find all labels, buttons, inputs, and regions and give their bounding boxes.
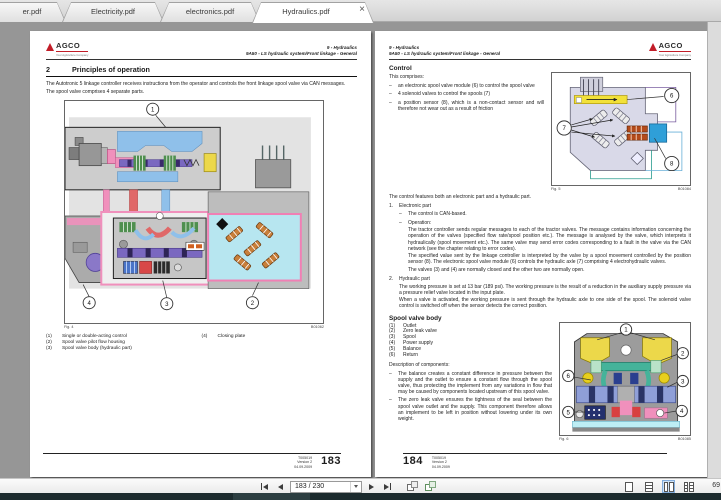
caption-item: (4)Closing plate	[202, 334, 358, 340]
svg-text:6: 6	[567, 373, 571, 380]
agco-triangle-icon	[649, 43, 657, 51]
page-footer: T005019 Version 2 04.09.2009 183	[30, 453, 371, 469]
taskbar-edge	[0, 493, 721, 500]
snapshot-button[interactable]	[407, 481, 419, 493]
page-184: 9 - Hydraulics 9A50 - LS hydraulic syste…	[375, 31, 707, 477]
logo-tagline: Your Agriculture Company	[56, 53, 88, 57]
figure-ref-code: B01062	[311, 325, 324, 329]
caption-item: (3)Spool valve body (hydraulic part)	[46, 346, 202, 352]
figure-5: 6 7 8 Fig. 5 B01084	[551, 72, 691, 191]
page-183: AGCO Your Agriculture Company 9 - Hydrau…	[30, 31, 371, 477]
next-page-icon	[369, 484, 374, 490]
valve-module-diagram: 6 7 8	[552, 73, 690, 185]
page-header: 9 - Hydraulics 9A50 - LS hydraulic syste…	[389, 42, 691, 60]
paragraph: The valves (3) and (4) are normally clos…	[408, 267, 691, 273]
spool-valve-body-heading: Spool valve body	[389, 315, 691, 322]
figure-label: Fig. 5	[551, 187, 561, 191]
previous-page-icon	[278, 484, 283, 490]
section-title-row: 2 Principles of operation	[46, 65, 357, 77]
svg-text:5: 5	[567, 409, 571, 416]
figure-label: Fig. 4	[64, 325, 74, 329]
facing-pages-icon	[664, 482, 674, 492]
tab-hydraulics-pdf[interactable]: Hydraulics.pdf ×	[252, 2, 374, 23]
figure-label: Fig. 6	[559, 437, 569, 441]
document-canvas: AGCO Your Agriculture Company 9 - Hydrau…	[0, 22, 707, 478]
caption-item: (6)Return	[389, 353, 552, 359]
figure-6: 1 2 3 4 5 6 Fig. 6 B01085	[559, 322, 691, 441]
first-page-icon	[263, 484, 268, 490]
continuous-view-button[interactable]	[642, 480, 655, 493]
numbered-item: 1.Electronic part	[389, 203, 691, 209]
bullet-item: –a position sensor (8), which is a non-c…	[389, 100, 544, 112]
tab-bar: er.pdf Electricity.pdf electronics.pdf H…	[0, 0, 721, 22]
tab-label: electronics.pdf	[160, 7, 260, 16]
page-footer: 184 T005019 Version 2 04.09.2009	[375, 453, 707, 469]
paragraph: The Autotronic 5 linkage controller rece…	[46, 81, 357, 87]
logo-tagline: Your Agriculture Company	[659, 53, 691, 57]
doc-info: T005019 Version 2 04.09.2009	[432, 456, 450, 469]
bullet-item: –The zero leak valve ensures the tightne…	[389, 397, 552, 421]
figure-ref-code: B01084	[678, 187, 691, 191]
bullet-item: –The balance creates a constant differen…	[389, 371, 552, 395]
tab-label: Electricity.pdf	[62, 7, 164, 16]
figure-ref-code: B01085	[678, 437, 691, 441]
single-page-view-button[interactable]	[622, 480, 635, 493]
figure-5-frame: 6 7 8	[551, 72, 691, 186]
page-header: AGCO Your Agriculture Company 9 - Hydrau…	[46, 42, 357, 60]
hydraulic-cutaway-diagram: 1 2 3 4	[65, 101, 323, 323]
paragraph: The control features both an electronic …	[389, 194, 691, 200]
svg-text:1: 1	[624, 326, 628, 333]
section-title: Principles of operation	[72, 65, 150, 74]
navigation-toolbar: 183 / 230 69	[0, 478, 721, 493]
numbered-item: 2.Hydraulic part	[389, 276, 691, 282]
agco-logo: AGCO Your Agriculture Company	[46, 42, 88, 57]
section-line: 9A50 - LS hydraulic system/Front linkage…	[246, 51, 357, 57]
section-number: 2	[46, 65, 50, 74]
svg-text:2: 2	[681, 350, 685, 357]
logo-text: AGCO	[56, 42, 88, 50]
book-view-button[interactable]	[682, 480, 695, 493]
facing-pages-view-button[interactable]	[662, 480, 675, 493]
last-page-icon	[384, 484, 389, 490]
svg-text:4: 4	[680, 408, 684, 415]
bullet-item: –Operation:	[399, 220, 691, 226]
next-page-button[interactable]	[365, 480, 378, 493]
chevron-down-icon	[354, 485, 358, 488]
continuous-view-icon	[645, 482, 653, 492]
single-page-icon	[625, 482, 633, 492]
figure-captions: (1)Single or double-acting control (2)Sp…	[46, 334, 357, 352]
running-header: 9 - Hydraulics 9A50 - LS hydraulic syste…	[389, 45, 500, 56]
tab-label: Hydraulics.pdf	[252, 7, 374, 16]
figure-6-frame: 1 2 3 4 5 6	[559, 322, 691, 436]
agco-logo: AGCO Your Agriculture Company	[649, 42, 691, 57]
page-number: 183	[321, 456, 341, 467]
close-tab-icon[interactable]: ×	[359, 5, 365, 15]
taskbar-button-fragment	[233, 493, 310, 500]
logo-text: AGCO	[659, 42, 691, 50]
figure-4-frame: 1 2 3 4	[64, 100, 324, 324]
last-page-button[interactable]	[381, 480, 394, 493]
page-number-input[interactable]: 183 / 230	[290, 481, 362, 493]
paragraph: The specified value sent by the linkage …	[408, 253, 691, 265]
tab-er-pdf[interactable]: er.pdf	[0, 2, 66, 22]
page-number: 184	[403, 456, 423, 467]
agco-triangle-icon	[46, 43, 54, 51]
vertical-scrollbar[interactable]	[707, 22, 721, 478]
running-header: 9 - Hydraulics 9A50 - LS hydraulic syste…	[246, 45, 357, 56]
svg-text:3: 3	[681, 378, 685, 385]
first-page-button[interactable]	[258, 480, 271, 493]
doc-info: T005019 Version 2 04.09.2009	[294, 456, 312, 469]
section-line: 9A50 - LS hydraulic system/Front linkage…	[389, 51, 500, 57]
previous-page-button[interactable]	[274, 480, 287, 493]
paragraph: The tractor controller sends regular mes…	[408, 227, 691, 251]
bullet-item: –an electronic spool valve module (6) to…	[389, 83, 544, 89]
spool-valve-body-diagram: 1 2 3 4 5 6	[560, 323, 690, 435]
bullet-item: –The control is CAN-based.	[399, 211, 691, 217]
copy-view-button[interactable]	[425, 481, 437, 493]
bullet-item: –4 solenoid valves to control the spools…	[389, 91, 544, 97]
tab-electricity-pdf[interactable]: Electricity.pdf	[62, 2, 164, 22]
book-view-icon	[684, 482, 694, 492]
zoom-level[interactable]: 69	[712, 482, 720, 489]
tab-label: er.pdf	[0, 7, 66, 16]
paragraph: The working pressure is set at 13 bar (1…	[399, 284, 691, 296]
control-heading: Control	[389, 65, 691, 72]
tab-electronics-pdf[interactable]: electronics.pdf	[160, 2, 260, 22]
paragraph: The spool valve comprises 4 separate par…	[46, 89, 357, 95]
paragraph: When a valve is activated, the working p…	[399, 297, 691, 309]
figure-4: 1 2 3 4 Fig. 4 B01062	[64, 100, 324, 329]
